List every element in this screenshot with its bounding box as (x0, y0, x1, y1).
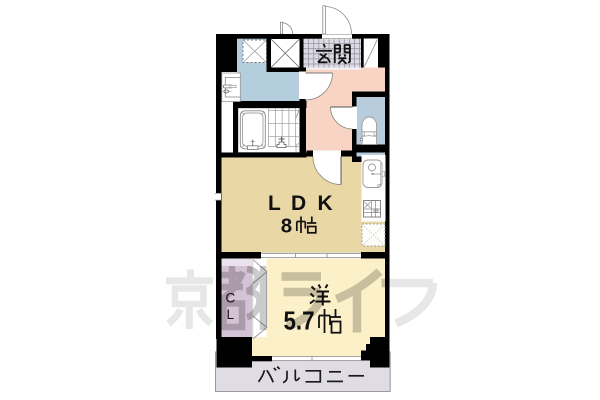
svg-text:8: 8 (281, 215, 292, 238)
svg-text:D: D (291, 192, 306, 215)
svg-text:K: K (318, 192, 333, 215)
svg-text:L: L (268, 192, 281, 215)
svg-text:L: L (227, 307, 235, 322)
